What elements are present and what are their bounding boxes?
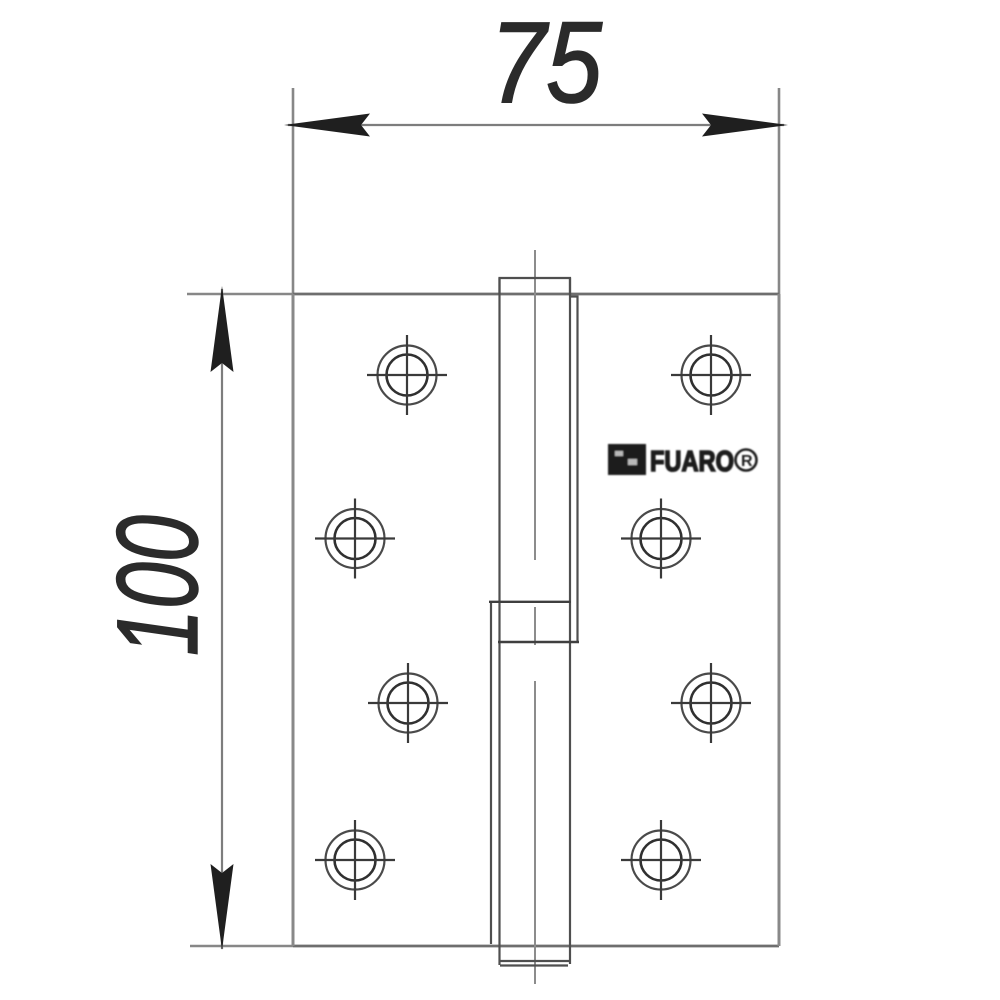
svg-text:100: 100 [94,515,222,656]
svg-text:R: R [741,453,753,470]
svg-text:75: 75 [490,0,603,127]
svg-text:FUARO: FUARO [650,446,734,478]
